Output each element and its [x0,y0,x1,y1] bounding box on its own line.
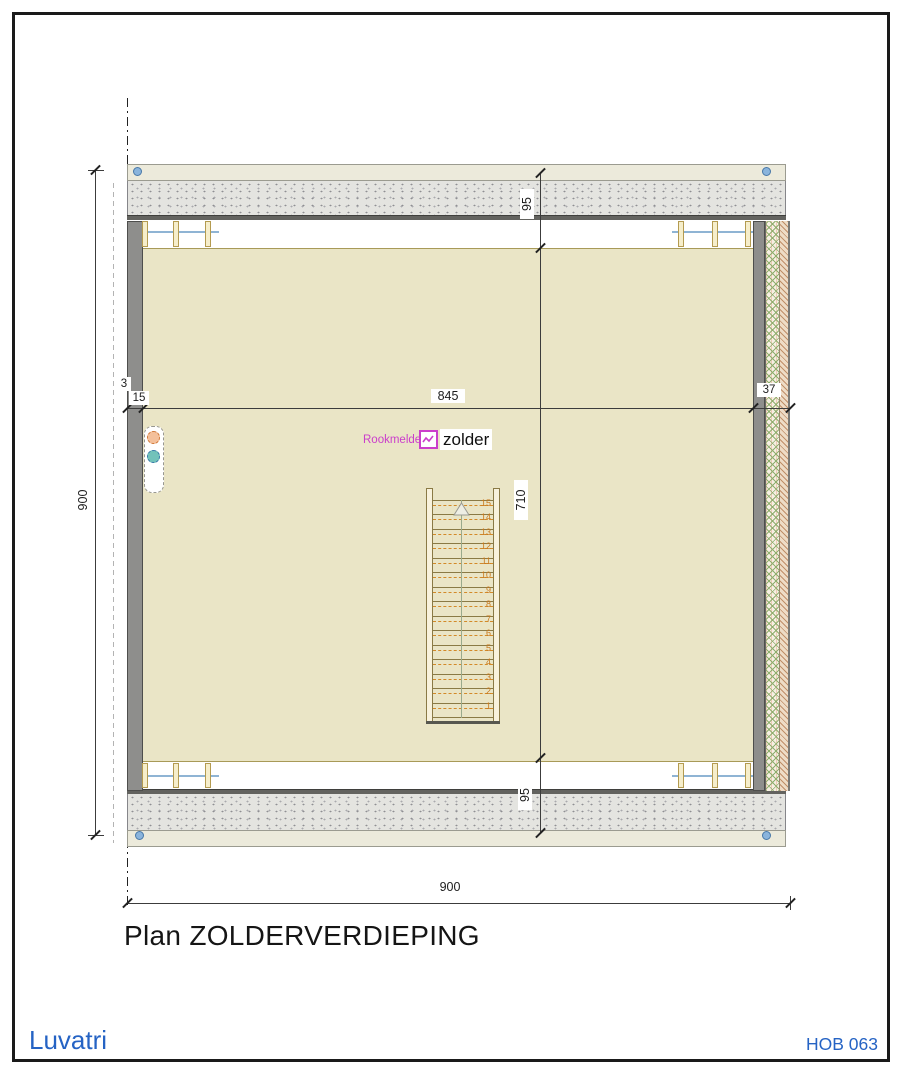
left-wall [127,221,143,791]
joist [678,763,684,788]
dim-label-roof-band-top: 95 [520,189,534,219]
joist [712,763,718,788]
tread-dashed-line [433,664,493,665]
stair-rail-left [426,488,433,722]
joist [173,763,179,788]
stair-steps: 151413121110987654321 [433,500,493,718]
tread-dashed-line [433,621,493,622]
joist [173,221,179,247]
smoke-detector-icon [419,430,438,449]
roof-band-bottom [127,794,786,830]
stair-step-row: 8 [433,601,493,615]
stair-step-row: 3 [433,674,493,688]
stair-step-row: 2 [433,688,493,702]
plan-title: Plan ZOLDERVERDIEPING [124,920,480,952]
stair-step-number: 12 [481,541,491,551]
joist [142,763,148,788]
right-wall-insulation [765,221,779,791]
stair-step-number: 4 [486,657,491,667]
joist [205,763,211,788]
connector-dot-icon [762,831,771,840]
stair-step-number: 10 [481,570,491,580]
tread-dashed-line [433,679,493,680]
stair-step-number: 3 [486,672,491,682]
stair-step-number: 6 [486,628,491,638]
stair-step-row: 5 [433,645,493,659]
stair-step-number: 13 [481,527,491,537]
dim-label-right-wall: 37 [757,383,781,397]
dim-line-overall-height [95,170,96,835]
up-arrow-icon [453,502,470,516]
stair-step-number: 1 [486,701,491,711]
right-wall-inner-leaf [753,221,765,791]
stair-step-number: 15 [481,498,491,508]
stair-step-number: 9 [486,585,491,595]
smoke-detector-label: Rookmelder [363,433,425,447]
stair-step-row: 6 [433,630,493,644]
stair-step-row: 9 [433,587,493,601]
tread-dashed-line [433,592,493,593]
joist [205,221,211,247]
stair-rail-right [493,488,500,722]
tread-dashed-line [433,708,493,709]
dim-label-left-wall: 15 [129,391,149,405]
joist [745,221,751,247]
dim-label-interior-width: 845 [431,389,465,403]
sheet-code: HOB 063 [793,1034,878,1055]
right-wall-outer-leaf [779,221,788,791]
eaves-strip-bottom [127,830,786,847]
dim-line-overall-width [127,903,790,904]
connector-dot-icon [135,831,144,840]
joist-strip-top [127,220,786,248]
connector-dot-icon [762,167,771,176]
joist [678,221,684,247]
tread-dashed-line [433,650,493,651]
stair-step-number: 14 [481,512,491,522]
dim-line-vertical-chain [540,173,541,833]
dim-label-overall-height: 900 [76,480,90,520]
dim-label-overall-width: 900 [430,880,470,894]
joist [712,221,718,247]
joist [745,763,751,788]
right-wall-outer-edge [788,221,790,791]
stair-step-number: 11 [482,556,491,566]
brand-name: Luvatri [29,1025,107,1056]
dim-label-axis-offset: 3 [117,377,131,391]
tread-dashed-line [433,606,493,607]
dim-label-roof-band-bottom: 95 [518,780,532,810]
stair-step-row: 1 [433,703,493,717]
stair-base-line [426,721,500,724]
stair-step-number: 8 [486,599,491,609]
dim-label-interior-depth: 710 [514,480,528,520]
stair-step-number: 2 [486,686,491,696]
wall-face-dashed-line [113,183,114,843]
stair-step-row: 7 [433,616,493,630]
stair-step-row: 4 [433,659,493,673]
stair-step-number: 7 [486,614,491,624]
vent-extract-icon [147,431,160,444]
stair: 151413121110987654321 [426,488,500,724]
eaves-strip-top [127,164,786,181]
vent-supply-icon [147,450,160,463]
tread-dashed-line [433,693,493,694]
connector-dot-icon [133,167,142,176]
dim-line-horizontal-chain [127,408,790,409]
joist [142,221,148,247]
stair-step-number: 5 [486,643,491,653]
room-label: zolder [440,429,492,450]
stair-walk-line [461,500,462,718]
tread-dashed-line [433,635,493,636]
roof-band-top [127,181,786,215]
stair-step-row: 10 [433,572,493,586]
